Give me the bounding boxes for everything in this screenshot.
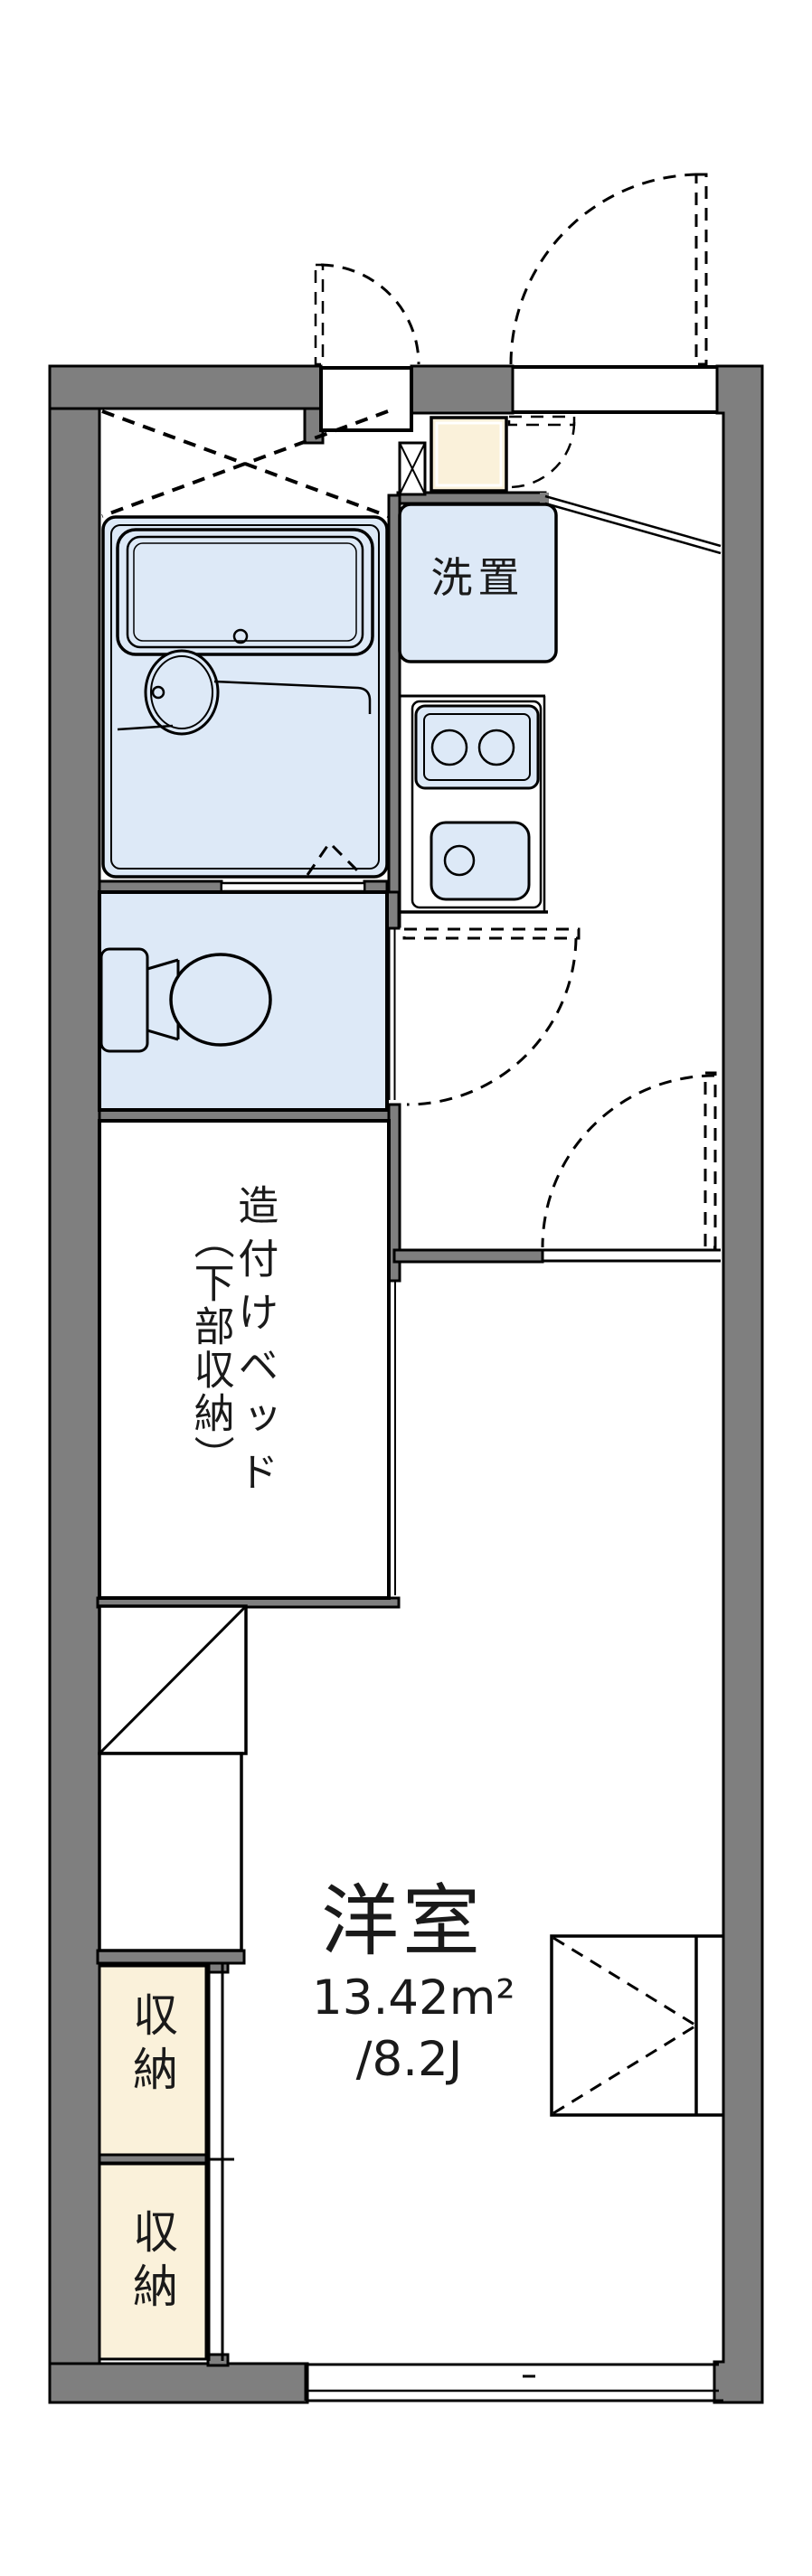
stove	[416, 706, 538, 788]
bathroom	[102, 411, 388, 877]
main-room-size: /8.2J	[312, 2034, 506, 2085]
wash-basin	[146, 651, 218, 734]
washer-space-label: 洗置	[400, 556, 556, 601]
toilet-door-leaf	[404, 929, 579, 938]
toilet-room	[99, 892, 387, 1110]
built-in-bed-label: 造付けベッド （下部収納）	[188, 1184, 276, 1546]
main-room-area: 13.42m²	[312, 1972, 506, 2024]
main-room-door	[543, 1073, 715, 1247]
main-room-door-arc	[543, 1076, 714, 1247]
wall-top-mid	[411, 366, 513, 413]
shoe-cabinet	[431, 418, 506, 491]
bath-opening-gap	[222, 883, 364, 891]
wall-top-left	[50, 366, 321, 409]
closet-upper-label: 収納	[127, 1991, 176, 2158]
genkan-door-arc	[509, 422, 574, 487]
main-room-label: 洋室	[316, 1880, 488, 1964]
wall-left	[50, 366, 99, 2401]
genkan-door	[509, 417, 574, 487]
bath-service-door-leaf	[316, 265, 323, 364]
wall-bottom-notch	[208, 2355, 228, 2365]
wall-bottom	[50, 2364, 307, 2402]
main-room-door-leaf	[705, 1073, 715, 1247]
genkan-step-line2	[545, 503, 721, 553]
lower-box	[99, 1753, 241, 1951]
genkan-step-line1	[545, 496, 721, 546]
genkan-door-leaf	[509, 417, 574, 425]
overhead-dashed-x	[102, 411, 388, 516]
toilet-door-arc	[407, 938, 576, 1105]
bottom-window	[306, 2364, 723, 2401]
floorplan-page: 洗置 造付けベッド （下部収納） 収納 収納 洋室 13.42m² /8.2J	[0, 0, 812, 2576]
entrance-door-leaf	[696, 174, 706, 364]
refrigerator-space	[552, 1936, 723, 2115]
bath-service-door	[316, 265, 419, 364]
wall-bath-kitchen	[389, 495, 400, 926]
closet-lower-label: 収納	[127, 2208, 176, 2375]
built-in-bed-label-line1: 造付けベッド	[232, 1184, 277, 1546]
toilet-door	[404, 929, 579, 1105]
refrigerator-dashes	[553, 1938, 696, 2113]
toilet-tank	[101, 949, 147, 1051]
wall-corridor-room	[394, 1250, 543, 1262]
built-in-bed-label-line2: （下部収納）	[188, 1218, 232, 1546]
entrance-door	[511, 174, 706, 364]
wall-closet-top	[98, 1951, 244, 1963]
bath-service-door-arc	[321, 265, 419, 364]
kitchen	[400, 696, 548, 912]
floorplan-canvas	[0, 0, 812, 2576]
wall-right	[714, 366, 762, 2402]
refrigerator-box	[552, 1936, 723, 2115]
entrance-door-arc	[511, 174, 701, 364]
bathtub	[118, 530, 373, 654]
toilet-bowl	[171, 954, 270, 1045]
